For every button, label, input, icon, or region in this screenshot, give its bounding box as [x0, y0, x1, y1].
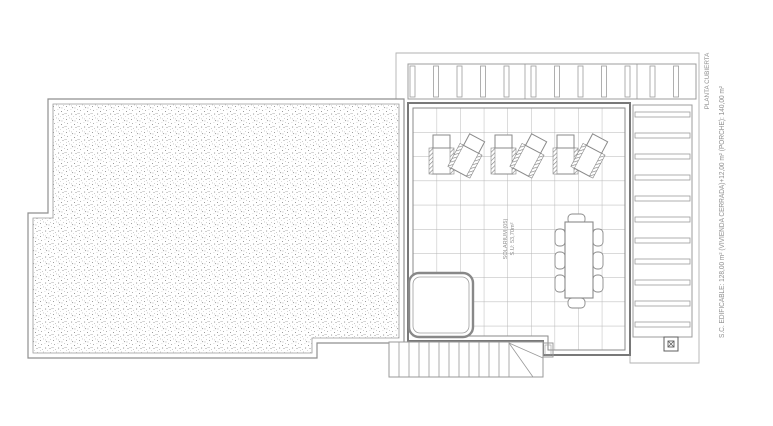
pergola-top	[408, 64, 696, 99]
dining-chair	[593, 275, 603, 292]
dining-chair	[593, 252, 603, 269]
dining-chair	[555, 252, 565, 269]
dining-chair	[568, 298, 585, 308]
dining-table	[565, 222, 593, 298]
floorplan-canvas: SOLARIUM (05) S.U: 53,70m² PLANTA CUBIER…	[0, 0, 773, 426]
gravel-roof-area	[28, 99, 404, 358]
plan-title: PLANTA CUBIERTA	[704, 52, 711, 109]
drain-icon	[664, 337, 678, 351]
roof-plan-page: SOLARIUM (05) S.U: 53,70m² PLANTA CUBIER…	[0, 0, 773, 426]
dining-chair	[555, 229, 565, 246]
pergola-right	[633, 105, 692, 337]
staircase	[389, 342, 553, 377]
dining-chair	[555, 275, 565, 292]
buildable-area-note: S.C. EDIFICABLE: 128,00 m² (VIVIENDA CER…	[717, 85, 726, 338]
dining-chair	[593, 229, 603, 246]
solarium-name: SOLARIUM (05)	[503, 219, 509, 260]
solarium-label: SOLARIUM (05) S.U: 53,70m²	[503, 219, 516, 260]
skylight	[409, 273, 473, 337]
solarium-area: S.U: 53,70m²	[510, 222, 516, 255]
